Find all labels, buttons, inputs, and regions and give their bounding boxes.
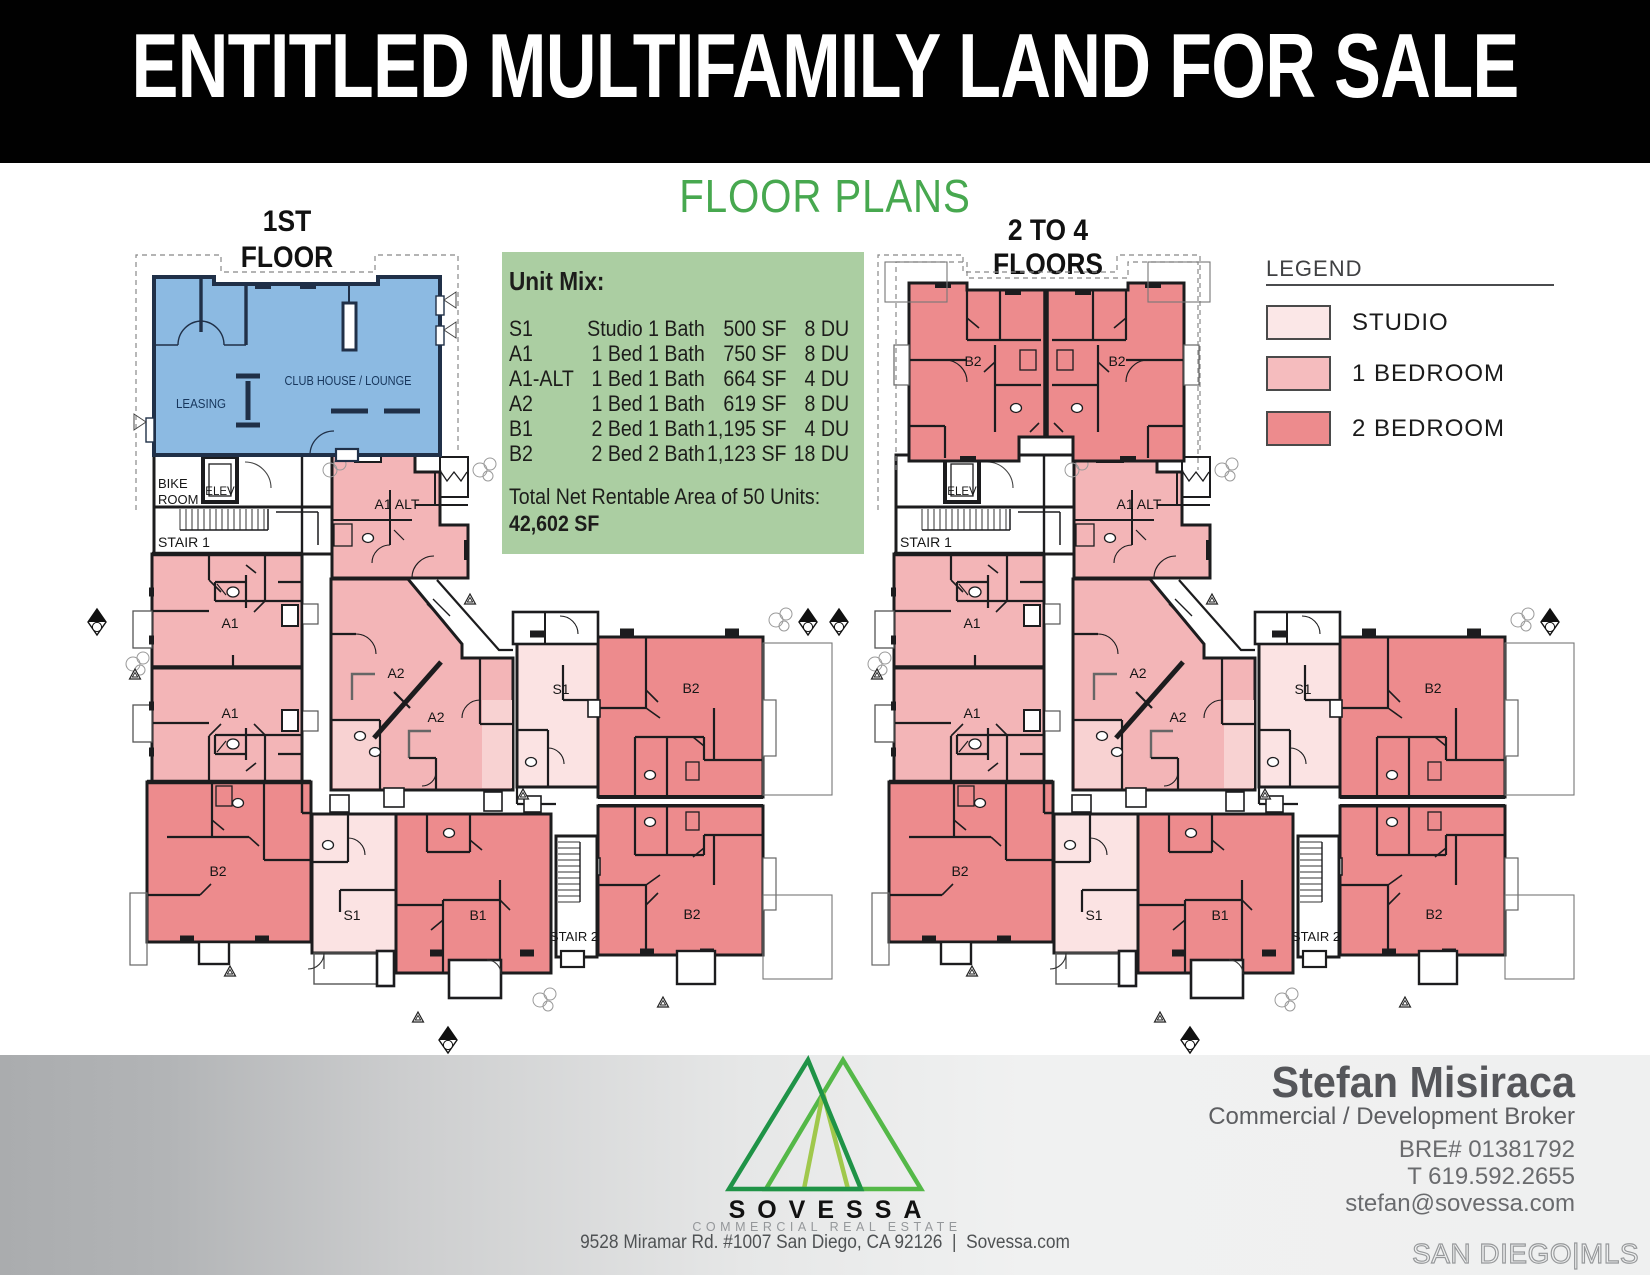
svg-text:B2: B2 [1108,353,1125,369]
svg-text:ROOM: ROOM [158,492,198,507]
svg-text:B2: B2 [964,353,981,369]
svg-text:CLUB HOUSE / LOUNGE: CLUB HOUSE / LOUNGE [285,373,412,388]
svg-text:BIKE: BIKE [158,476,188,491]
svg-text:LEASING: LEASING [176,397,226,411]
